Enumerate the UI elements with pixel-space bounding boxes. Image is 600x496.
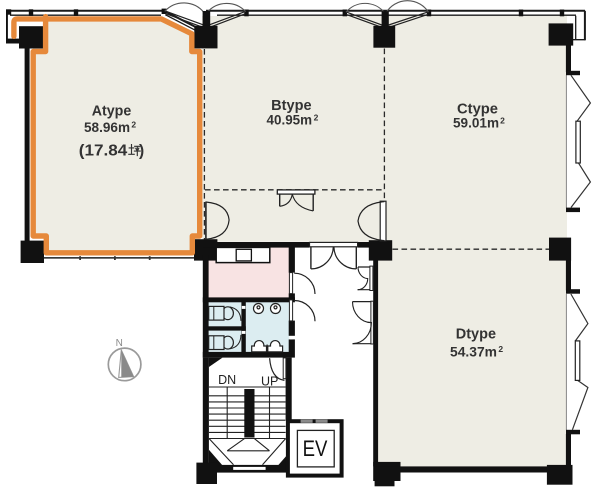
svg-text:2: 2: [131, 120, 136, 130]
svg-text:DN: DN: [218, 373, 236, 387]
svg-text:2: 2: [498, 344, 503, 354]
svg-text:UP: UP: [261, 375, 278, 389]
svg-text:EV: EV: [303, 436, 328, 461]
svg-text:(17.84: (17.84: [79, 142, 128, 159]
svg-text:2: 2: [500, 115, 505, 125]
svg-text:N: N: [116, 338, 123, 349]
svg-text:2: 2: [314, 112, 319, 122]
svg-text:59.01m: 59.01m: [453, 115, 499, 131]
svg-text:40.95m: 40.95m: [267, 112, 313, 128]
svg-text:Dtype: Dtype: [456, 327, 496, 343]
svg-text:Atype: Atype: [92, 104, 132, 120]
svg-text:54.37m: 54.37m: [450, 343, 497, 359]
svg-text:58.96m: 58.96m: [84, 119, 130, 135]
